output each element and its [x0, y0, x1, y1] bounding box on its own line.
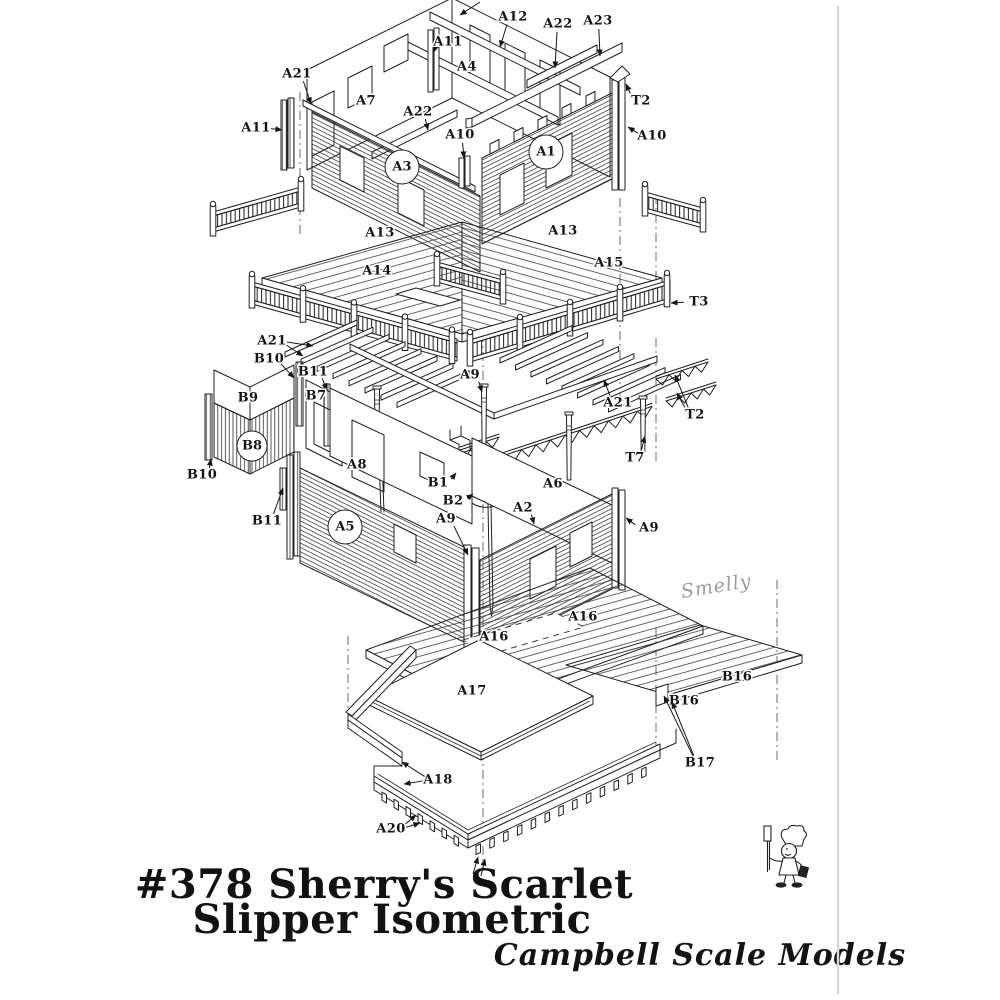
part-label-A13: A13 — [364, 226, 394, 241]
corner-post-a9-right — [612, 488, 625, 590]
corner-post-t2-a10-right — [610, 66, 630, 190]
part-label-A16: A16 — [567, 610, 597, 625]
part-label-T3: T3 — [689, 295, 709, 310]
chef-apron — [779, 858, 799, 875]
part-label-A13: A13 — [547, 224, 577, 239]
part-label-A15: A15 — [593, 256, 623, 271]
part-label-A9: A9 — [435, 512, 456, 527]
circled-part-label-A1: A1 — [535, 145, 555, 160]
part-label-A12: A12 — [497, 10, 527, 25]
isometric-exploded-diagram: Smelly #378 Sherry's Scarlet Slipper Iso… — [0, 0, 1000, 1000]
corner-trim-a9-left — [287, 452, 300, 559]
part-label-B10: B10 — [187, 468, 217, 483]
chef-hat-icon — [781, 825, 806, 846]
handwritten-signature: Smelly — [679, 570, 753, 603]
scanned-instruction-sheet: Smelly #378 Sherry's Scarlet Slipper Iso… — [0, 0, 1000, 1000]
part-label-A22: A22 — [402, 105, 432, 120]
part-label-A21: A21 — [281, 67, 311, 82]
sheet-title-line2: Slipper Isometric — [193, 896, 592, 943]
part-label-B11: B11 — [298, 365, 328, 380]
part-label-A22: A22 — [542, 17, 572, 32]
part-label-B9: B9 — [238, 391, 259, 406]
brand-name: Campbell Scale Models — [494, 938, 906, 973]
part-label-A7: A7 — [355, 94, 376, 109]
chef-face — [782, 844, 797, 859]
corner-trim-a11-left — [281, 98, 294, 170]
part-label-A2: A2 — [512, 501, 533, 516]
circled-part-label-B8: B8 — [242, 439, 262, 454]
chef-mascot — [764, 825, 809, 887]
circled-part-label-A3: A3 — [391, 160, 411, 175]
part-label-B7: B7 — [306, 389, 327, 404]
part-label-A9: A9 — [638, 521, 659, 536]
part-label-A17: A17 — [456, 684, 486, 699]
part-label-A9: A9 — [459, 368, 480, 383]
part-label-A4: A4 — [456, 60, 477, 75]
part-label-T7: T7 — [625, 451, 645, 466]
part-label-A23: A23 — [582, 14, 612, 29]
part-label-A8: A8 — [346, 458, 367, 473]
part-label-A10: A10 — [636, 129, 666, 144]
part-label-B11: B11 — [252, 514, 282, 529]
brush-icon — [764, 826, 771, 872]
part-label-B1: B1 — [428, 476, 449, 491]
corner-post-a10-left — [459, 156, 470, 188]
trim-b10-left — [205, 394, 212, 460]
circled-part-label-A5: A5 — [334, 520, 354, 535]
part-label-T2: T2 — [631, 94, 651, 109]
part-label-B16: B16 — [722, 670, 752, 685]
part-label-B2: B2 — [443, 494, 464, 509]
part-label-A21: A21 — [602, 396, 632, 411]
part-label-B10: B10 — [254, 352, 284, 367]
part-label-A18: A18 — [422, 773, 452, 788]
part-label-A11: A11 — [240, 121, 270, 136]
part-label-A14: A14 — [361, 264, 391, 279]
part-label-A6: A6 — [542, 477, 563, 492]
part-label-A10: A10 — [444, 128, 474, 143]
part-label-A20: A20 — [375, 822, 405, 837]
notch-b17 — [656, 684, 668, 706]
part-label-T2: T2 — [685, 408, 705, 423]
part-label-A16: A16 — [478, 630, 508, 645]
part-label-B17: B17 — [685, 756, 715, 771]
part-label-A11: A11 — [432, 35, 462, 50]
part-label-A21: A21 — [256, 334, 286, 349]
